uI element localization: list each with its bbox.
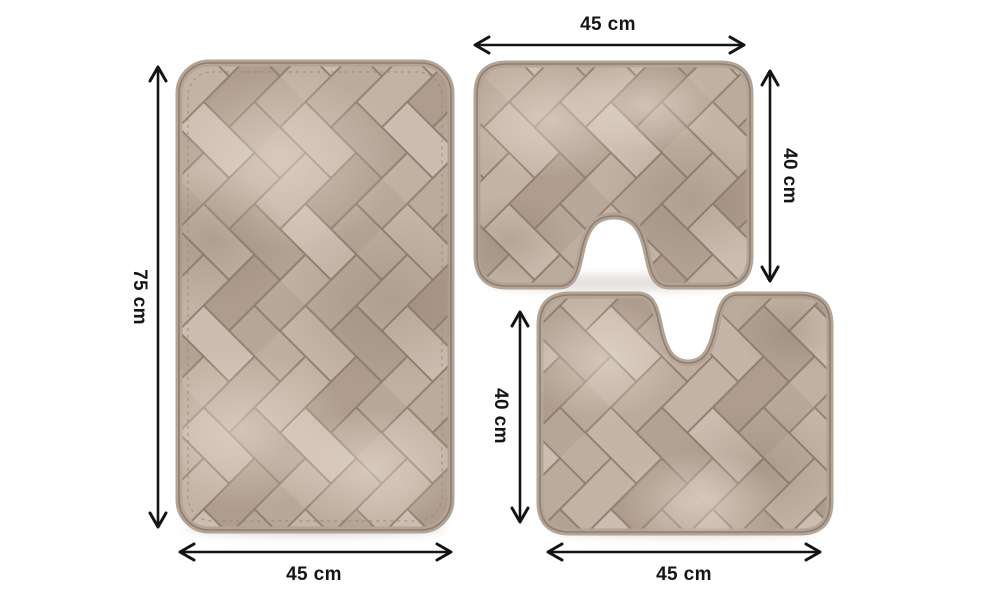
width-label-pedestal-mat-top: 45 cm (580, 14, 636, 36)
width-label-pedestal-mat-bottom: 45 cm (656, 564, 712, 586)
height-label-bath-mat: 75 cm (128, 269, 150, 325)
product-dimension-diagram: 75 cm 45 cm 45 cm 40 cm 40 cm 45 cm (0, 0, 1000, 600)
bath-mat (130, 63, 500, 530)
pedestal-mat-bottom (520, 285, 850, 550)
height-label-pedestal-mat-bottom: 40 cm (489, 388, 511, 444)
height-label-pedestal-mat-top: 40 cm (778, 148, 800, 204)
width-label-bath-mat: 45 cm (286, 564, 342, 586)
pedestal-mat-top (450, 60, 780, 286)
diagram-canvas (0, 0, 1000, 600)
